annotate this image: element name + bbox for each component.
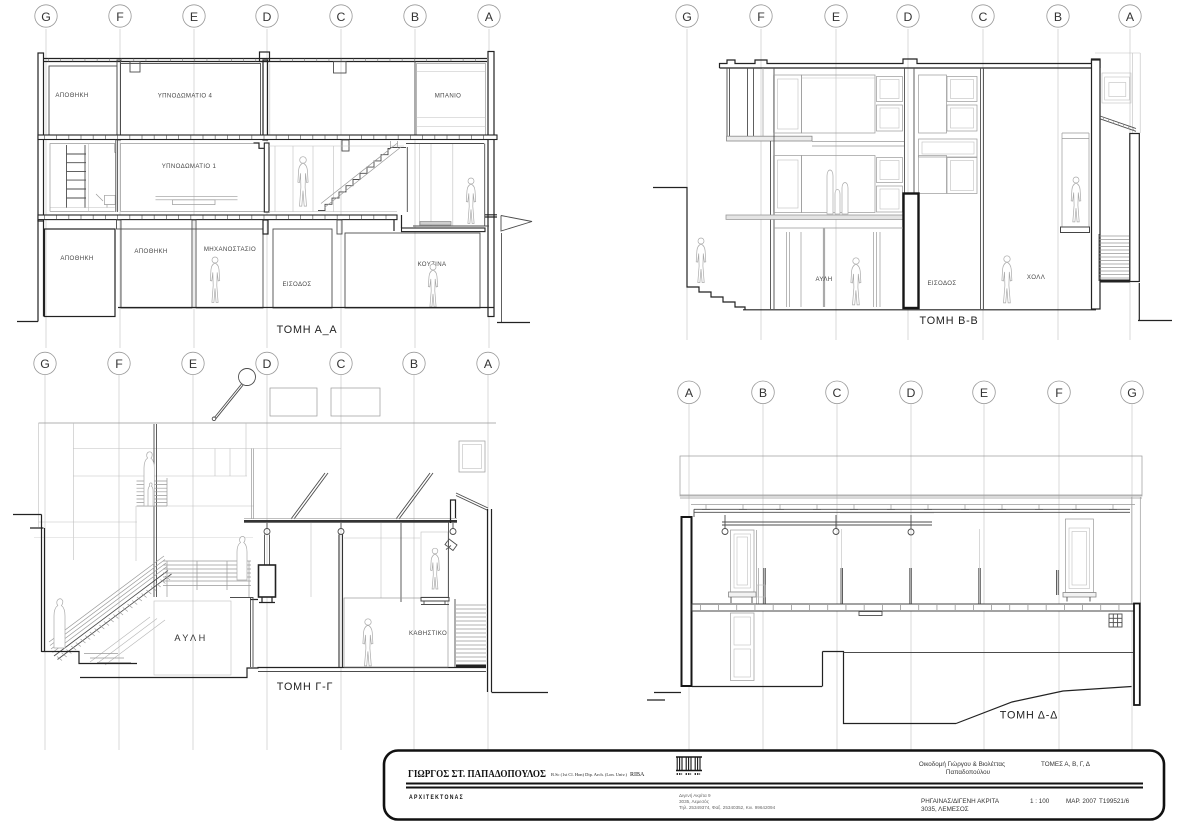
svg-text:A: A xyxy=(485,10,494,24)
svg-text:ΧΟΛΛ: ΧΟΛΛ xyxy=(1027,274,1046,281)
svg-text:ΡΗΓΑΙΝΑΣ/ΔΙΓΕΝΗ ΑΚΡΙΤΑ: ΡΗΓΑΙΝΑΣ/ΔΙΓΕΝΗ ΑΚΡΙΤΑ xyxy=(921,798,1000,805)
svg-text:ΤΟΜΕΣ Α, Β, Γ, Δ: ΤΟΜΕΣ Α, Β, Γ, Δ xyxy=(1041,761,1091,768)
svg-text:3035, ΛΕΜΕΣΟΣ: 3035, ΛΕΜΕΣΟΣ xyxy=(921,806,969,813)
svg-text:F: F xyxy=(757,10,765,24)
svg-text:G: G xyxy=(682,10,692,24)
svg-text:Διγενή Ακρίτα 9: Διγενή Ακρίτα 9 xyxy=(679,792,711,798)
svg-text:C: C xyxy=(833,386,842,400)
svg-text:C: C xyxy=(337,357,346,371)
svg-text:B: B xyxy=(411,10,419,24)
svg-text:Παπαδοπούλου: Παπαδοπούλου xyxy=(946,768,991,776)
svg-text:D: D xyxy=(904,10,913,24)
svg-text:E: E xyxy=(980,386,988,400)
svg-text:ΚΑΘΗΣΤΙΚΟ: ΚΑΘΗΣΤΙΚΟ xyxy=(409,630,447,637)
svg-text:G: G xyxy=(40,357,50,371)
svg-text:ΑΠΟΘΗΚΗ: ΑΠΟΘΗΚΗ xyxy=(55,92,88,99)
svg-text:A: A xyxy=(1126,10,1135,24)
svg-text:A: A xyxy=(484,357,493,371)
svg-text:ΤΟΜΗ Γ-Γ: ΤΟΜΗ Γ-Γ xyxy=(277,681,333,693)
svg-text:ΤΟΜΗ Δ-Δ: ΤΟΜΗ Δ-Δ xyxy=(1000,710,1058,722)
svg-text:ΤΟΜΗ Β-Β: ΤΟΜΗ Β-Β xyxy=(920,315,979,327)
svg-text:G: G xyxy=(41,10,51,24)
svg-text:ΤΟΜΗ Α_Α: ΤΟΜΗ Α_Α xyxy=(277,324,338,336)
svg-text:Τ199521/6: Τ199521/6 xyxy=(1099,798,1130,805)
svg-text:A: A xyxy=(685,386,694,400)
svg-text:D: D xyxy=(263,357,272,371)
svg-text:E: E xyxy=(832,10,840,24)
svg-text:ΕΙΣΟΔΟΣ: ΕΙΣΟΔΟΣ xyxy=(927,280,956,287)
svg-text:B.Sc (1st Cl. Hon) Dip. Arch.: B.Sc (1st Cl. Hon) Dip. Arch. (Lon. Univ… xyxy=(551,772,628,777)
svg-text:ΜΑΡ. 2007: ΜΑΡ. 2007 xyxy=(1066,798,1097,805)
svg-text:D: D xyxy=(263,10,272,24)
svg-text:G: G xyxy=(1127,386,1137,400)
svg-text:E: E xyxy=(189,357,197,371)
svg-text:ΑΥΛΗ: ΑΥΛΗ xyxy=(815,276,832,283)
svg-text:D: D xyxy=(907,386,916,400)
svg-text:ΕΙΣΟΔΟΣ: ΕΙΣΟΔΟΣ xyxy=(282,281,311,288)
svg-text:B: B xyxy=(410,357,418,371)
svg-text:F: F xyxy=(1055,386,1063,400)
svg-text:B: B xyxy=(1054,10,1062,24)
svg-text:ΥΠΝΟΔΩΜΑΤΙΟ 1: ΥΠΝΟΔΩΜΑΤΙΟ 1 xyxy=(162,163,217,170)
svg-text:E: E xyxy=(190,10,198,24)
svg-text:ΑΥΛΗ: ΑΥΛΗ xyxy=(174,633,207,643)
svg-text:3035, Λεμεσός: 3035, Λεμεσός xyxy=(679,798,710,804)
svg-text:Οικοδομή Γιώργου & Βιολέττας: Οικοδομή Γιώργου & Βιολέττας xyxy=(919,760,1005,768)
svg-text:ΑΡΧΙΤΕΚΤΟΝΑΣ: ΑΡΧΙΤΕΚΤΟΝΑΣ xyxy=(409,795,464,801)
svg-text:C: C xyxy=(979,10,988,24)
svg-text:C: C xyxy=(337,10,346,24)
svg-text:1 : 100: 1 : 100 xyxy=(1030,798,1050,805)
svg-text:RIBA: RIBA xyxy=(630,772,645,778)
svg-text:F: F xyxy=(115,357,123,371)
svg-text:ΑΠΟΘΗΚΗ: ΑΠΟΘΗΚΗ xyxy=(134,248,167,255)
svg-text:F: F xyxy=(116,10,124,24)
svg-text:ΥΠΝΟΔΩΜΑΤΙΟ 4: ΥΠΝΟΔΩΜΑΤΙΟ 4 xyxy=(158,93,213,100)
svg-text:ΜΗΧΑΝΟΣΤΑΣΙΟ: ΜΗΧΑΝΟΣΤΑΣΙΟ xyxy=(204,246,256,253)
svg-text:ΓΙΩΡΓΟΣ ΣΤ. ΠΑΠΑΔΟΠΟΥΛΟΣ: ΓΙΩΡΓΟΣ ΣΤ. ΠΑΠΑΔΟΠΟΥΛΟΣ xyxy=(408,769,546,780)
svg-text:ΑΠΟΘΗΚΗ: ΑΠΟΘΗΚΗ xyxy=(60,255,93,262)
svg-text:ΜΠΑΝΙΟ: ΜΠΑΝΙΟ xyxy=(435,93,461,100)
svg-text:B: B xyxy=(759,386,767,400)
